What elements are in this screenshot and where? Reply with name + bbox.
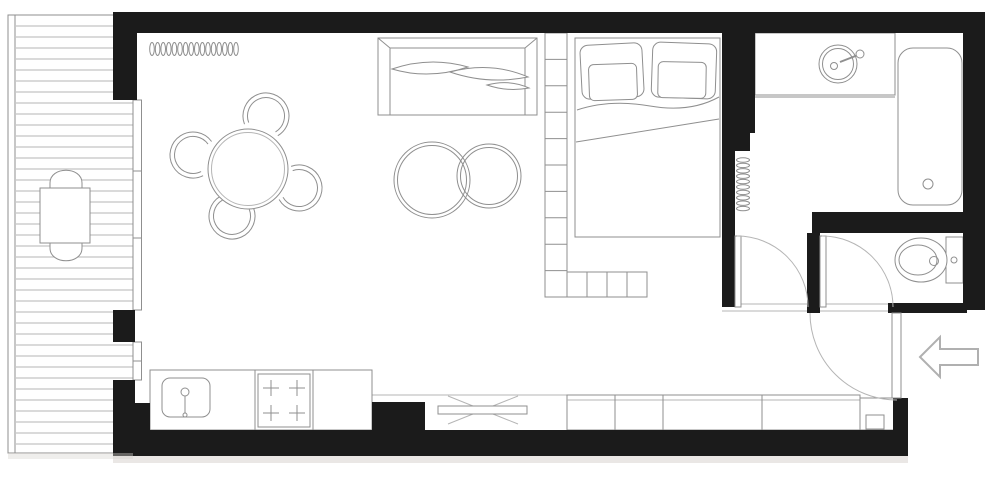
exterior-shadow-balcony: [8, 453, 133, 459]
balcony-table: [40, 188, 90, 243]
entry-door-leaf: [892, 313, 901, 398]
wall-wc-left: [807, 233, 820, 313]
toilet-tank: [946, 237, 963, 283]
wall-balcony-side-lower: [113, 380, 135, 432]
wall-top: [113, 12, 985, 33]
floor-plan: [0, 0, 989, 484]
toilet-bowl: [895, 238, 947, 282]
coffee-table-large: [394, 142, 470, 218]
bathroom-door-swing: [737, 236, 808, 307]
coffee-table-large-rim: [398, 146, 467, 215]
wall-bottom: [113, 430, 908, 456]
radiator-bathroom: [737, 158, 750, 211]
wall-kitchen-step: [135, 403, 150, 432]
wall-balcony-side-upper: [113, 310, 135, 342]
balcony-chair-top: [50, 170, 82, 190]
dining-chair-left-inner: [175, 136, 208, 173]
bathtub: [898, 48, 962, 205]
wall-wc-bottom: [888, 303, 967, 313]
entry-arrow: [920, 337, 978, 377]
bathroom-door-leaf: [735, 236, 741, 307]
floor-plan-svg: [0, 0, 989, 484]
bed-pillow-left-inner: [588, 63, 637, 101]
wall-top-left-corner: [113, 12, 137, 100]
radiator-living: [150, 43, 239, 56]
window-balcony-upper: [133, 100, 142, 310]
dining-table: [208, 129, 288, 209]
wall-wc-top: [812, 212, 967, 233]
kitchen-sink: [162, 378, 210, 417]
dining-chair-top-inner: [247, 98, 284, 132]
vanity-sink: [819, 45, 857, 83]
wall-bathroom-left-lower: [722, 133, 735, 307]
dining-chair-left-outer: [170, 132, 212, 178]
coffee-table-small-rim: [461, 148, 518, 205]
wall-bathroom-left-step: [735, 133, 750, 151]
wall-bottom-step: [372, 402, 425, 432]
dining-chair-right-inner: [283, 169, 317, 206]
tv-stand: [438, 406, 527, 414]
wall-entry-corner: [893, 398, 908, 433]
bed-pillow-right-inner: [658, 62, 707, 99]
exterior-shadow-bottom: [113, 456, 908, 463]
wall-right: [963, 12, 985, 310]
balcony-chair-bottom: [50, 241, 82, 261]
wall-bathroom-left-upper: [722, 33, 755, 133]
vanity-faucet-knob: [856, 50, 864, 58]
stove: [258, 374, 310, 427]
wc-door-swing: [822, 236, 893, 307]
entry-door-swing: [810, 313, 897, 400]
wc-door-leaf: [820, 236, 826, 307]
